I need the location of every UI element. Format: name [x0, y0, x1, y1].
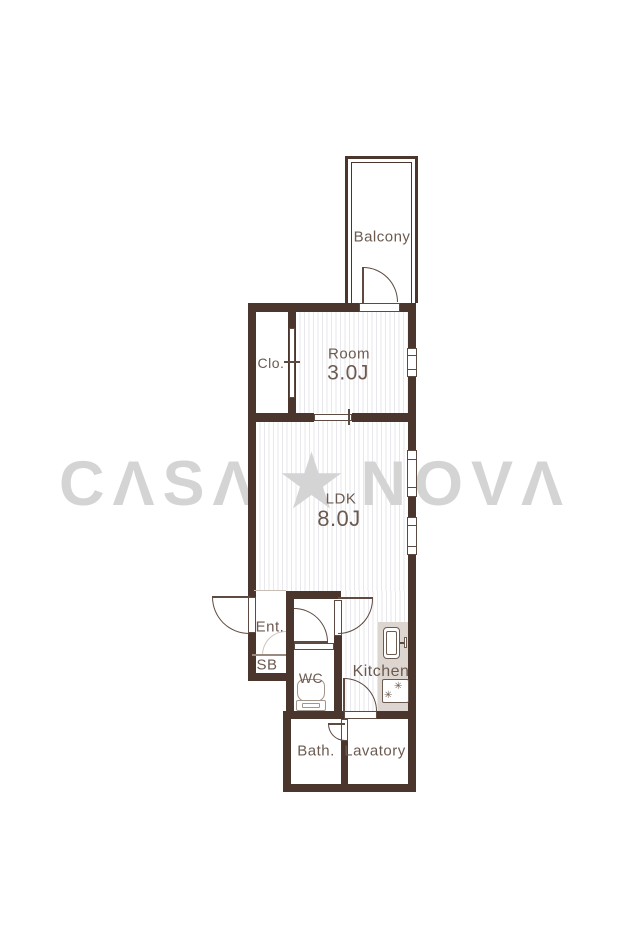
closet-label: Clo.: [258, 356, 285, 370]
toilet-lid-icon: [302, 703, 320, 708]
wall-segment: [334, 636, 342, 650]
wall-segment: [283, 719, 291, 792]
wall-segment: [408, 497, 416, 517]
room-size-label: 3.0J: [327, 363, 369, 384]
wc-door-swing-arc: [294, 608, 328, 642]
wall-segment: [286, 650, 294, 718]
shoebox-divider-line: [252, 654, 286, 656]
wall-segment: [408, 303, 416, 348]
wall-segment: [286, 599, 294, 650]
wall-segment: [334, 650, 342, 718]
shoebox-label: SB: [256, 658, 277, 673]
watermark: CΛSΛ ★ NOVΛ: [0, 441, 630, 527]
wall-segment: [248, 303, 359, 312]
window-icon: [407, 517, 417, 555]
kitchen-sink-basin-icon: [386, 631, 397, 655]
wall-segment: [283, 711, 344, 719]
stove-burner-icon: ✳: [384, 691, 392, 701]
floor-plan: CΛSΛ ★ NOVΛ: [0, 0, 630, 950]
closet-sliding-door-icon: [289, 328, 295, 398]
stove-burner-icon: ✳: [394, 682, 402, 692]
wc-label: WC: [299, 671, 323, 685]
window-icon: [407, 450, 417, 497]
window-icon: [407, 348, 417, 377]
wall-segment: [286, 591, 341, 599]
wall-segment: [352, 413, 416, 422]
wall-segment: [248, 303, 256, 597]
watermark-nova: NOVΛ: [360, 453, 571, 516]
entrance-label: Ent.: [256, 620, 285, 635]
ldk-label: LDK: [326, 492, 357, 507]
ldk-size-label: 8.0J: [317, 508, 361, 530]
balcony-door-opening: [359, 303, 400, 312]
wall-segment: [377, 711, 416, 719]
sliding-door-tick: [348, 409, 350, 425]
faucet-handle-icon: [404, 637, 407, 648]
lavatory-door-opening: [344, 711, 377, 719]
closet-door-tick: [284, 361, 300, 363]
wall-segment: [248, 413, 314, 422]
bath-label: Bath.: [297, 744, 335, 759]
bath-door-swing-arc: [328, 724, 345, 741]
sliding-door-icon: [314, 414, 352, 421]
entrance-door-swing-arc: [212, 597, 249, 634]
wc-door-opening: [294, 643, 334, 650]
room-label: Room: [328, 347, 370, 362]
kitchen-label: Kitchen: [353, 664, 410, 680]
balcony-label: Balcony: [354, 230, 411, 245]
entrance-boundary-line: [254, 590, 286, 591]
wall-segment: [283, 784, 416, 792]
watermark-casa: CΛSΛ: [59, 453, 263, 516]
lavatory-label: Lavatory: [344, 744, 406, 759]
